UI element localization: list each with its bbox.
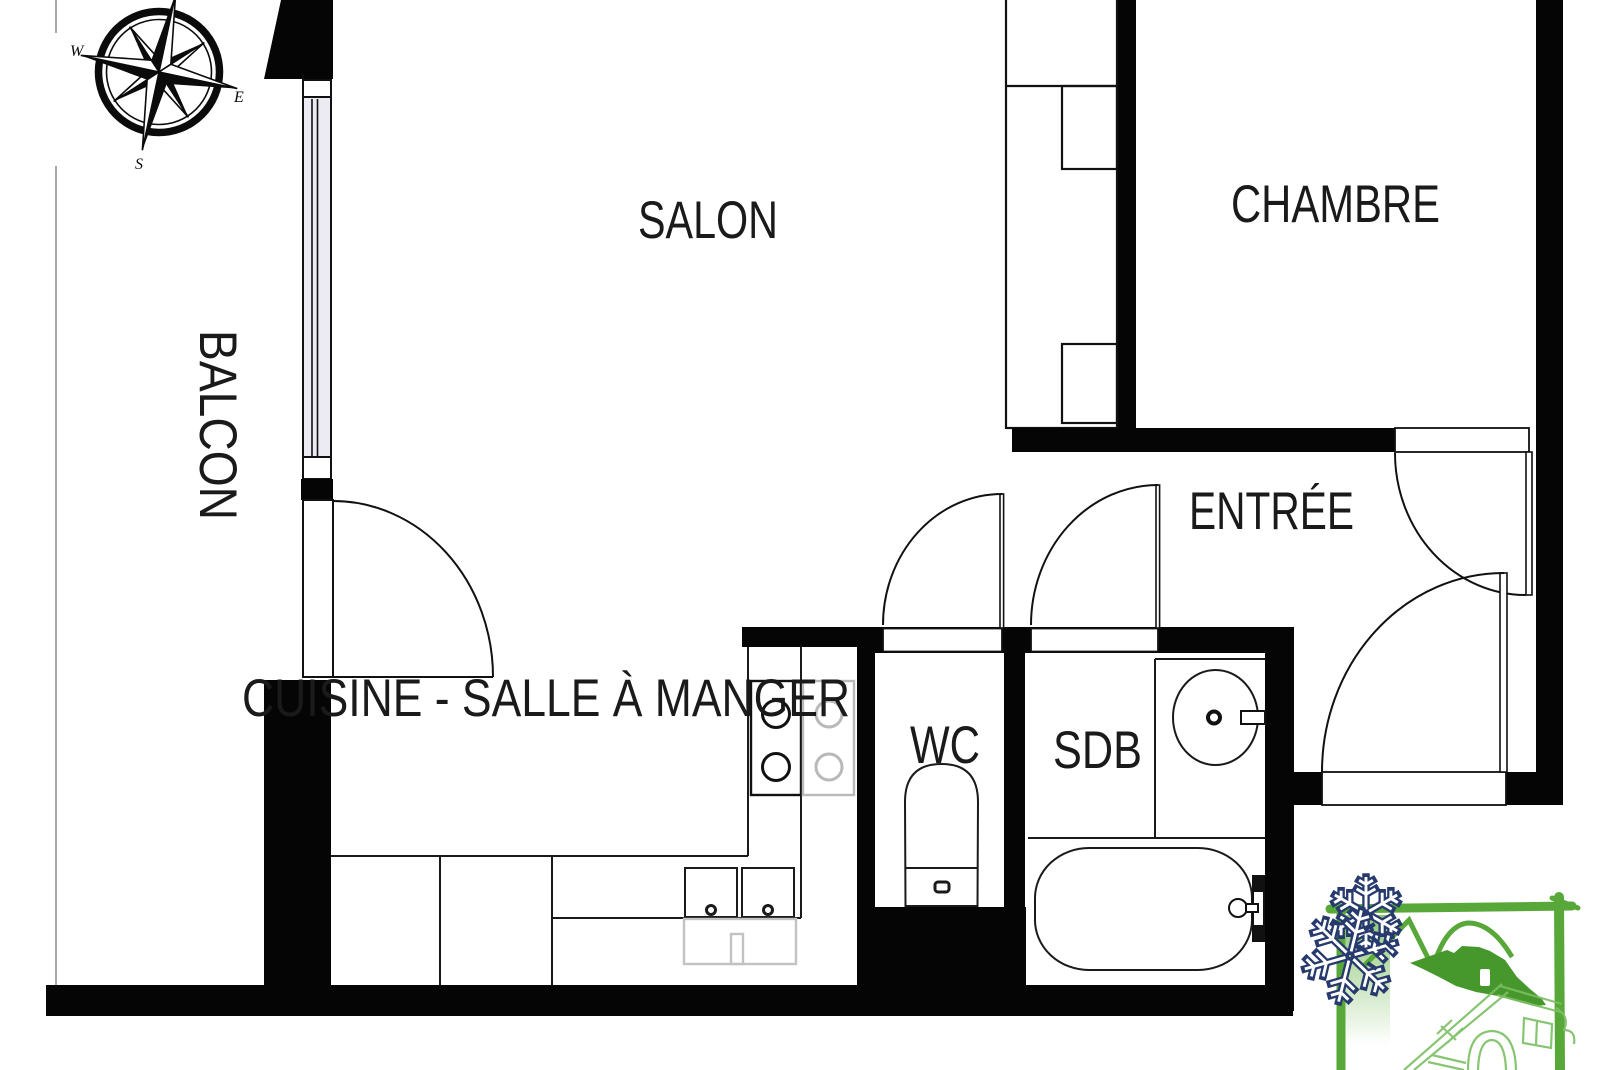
- svg-text:SDB: SDB: [1053, 721, 1142, 780]
- svg-text:E: E: [233, 89, 244, 106]
- svg-text:SALON: SALON: [638, 191, 778, 250]
- svg-text:S: S: [135, 156, 143, 173]
- svg-text:WC: WC: [910, 716, 980, 775]
- svg-text:CUISINE - SALLE À MANGER: CUISINE - SALLE À MANGER: [242, 669, 850, 728]
- svg-text:BALCON: BALCON: [188, 330, 247, 520]
- svg-text:ENTRÉE: ENTRÉE: [1189, 482, 1354, 541]
- svg-text:CHAMBRE: CHAMBRE: [1231, 175, 1440, 234]
- svg-text:W: W: [70, 43, 85, 60]
